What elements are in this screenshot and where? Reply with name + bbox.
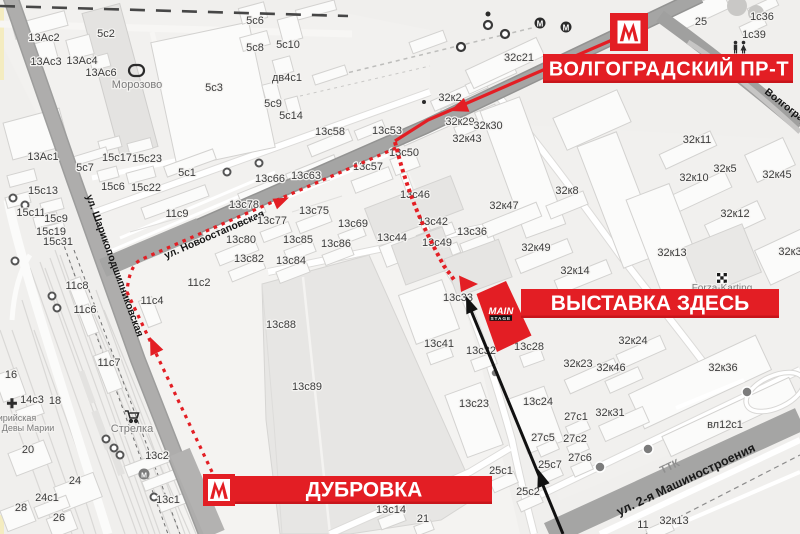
svg-text:25с1: 25с1 [489, 465, 513, 477]
svg-text:32к23: 32к23 [563, 358, 592, 370]
svg-text:32к14: 32к14 [560, 265, 589, 277]
svg-text:М: М [141, 473, 147, 480]
svg-text:Стрелка: Стрелка [111, 423, 154, 435]
svg-text:13с2: 13с2 [145, 450, 169, 462]
svg-text:13с89: 13с89 [292, 381, 322, 393]
svg-text:13с41: 13с41 [424, 338, 454, 350]
svg-text:5с10: 5с10 [276, 39, 300, 51]
svg-text:32к10: 32к10 [679, 172, 708, 184]
svg-text:20: 20 [22, 444, 34, 456]
svg-text:13с85: 13с85 [283, 234, 313, 246]
svg-text:32к3: 32к3 [778, 246, 800, 258]
svg-text:13с84: 13с84 [276, 255, 306, 267]
svg-text:вл12с1: вл12с1 [707, 419, 743, 431]
svg-text:15с11: 15с11 [16, 207, 45, 219]
svg-text:13с75: 13с75 [299, 205, 329, 217]
svg-text:Девы Марии: Девы Марии [2, 423, 55, 433]
svg-text:15с22: 15с22 [131, 182, 161, 194]
svg-text:14с3: 14с3 [20, 394, 44, 406]
svg-text:13с14: 13с14 [376, 504, 406, 516]
svg-text:32к43: 32к43 [452, 133, 481, 145]
svg-text:ДУБРОВКА: ДУБРОВКА [306, 479, 423, 502]
svg-text:32к31: 32к31 [595, 407, 624, 419]
svg-text:дв4с1: дв4с1 [272, 72, 302, 84]
svg-text:13с80: 13с80 [226, 234, 256, 246]
svg-text:11с9: 11с9 [165, 208, 188, 220]
svg-text:11с7: 11с7 [97, 357, 120, 369]
svg-text:25с2: 25с2 [516, 486, 540, 498]
svg-text:5с14: 5с14 [279, 110, 303, 122]
svg-text:13с86: 13с86 [321, 238, 351, 250]
svg-text:32к2: 32к2 [438, 92, 461, 104]
svg-text:13Ас6: 13Ас6 [85, 67, 116, 79]
svg-text:15с13: 15с13 [28, 185, 58, 197]
svg-text:13с63: 13с63 [291, 170, 321, 182]
svg-text:13с88: 13с88 [266, 319, 296, 331]
svg-text:1с36: 1с36 [750, 11, 774, 23]
svg-text:5с3: 5с3 [205, 82, 223, 94]
svg-text:24: 24 [69, 475, 81, 487]
svg-text:32к8: 32к8 [555, 185, 578, 197]
svg-text:18: 18 [49, 395, 61, 407]
svg-text:32к24: 32к24 [618, 335, 647, 347]
svg-text:1с39: 1с39 [742, 29, 766, 41]
svg-text:13с44: 13с44 [377, 232, 407, 244]
svg-text:15с31: 15с31 [43, 236, 73, 248]
svg-text:13с69: 13с69 [338, 218, 368, 230]
svg-text:32к13: 32к13 [657, 247, 686, 259]
svg-text:Морозово: Морозово [112, 79, 162, 91]
svg-text:27с1: 27с1 [564, 411, 588, 423]
svg-text:32к30: 32к30 [473, 120, 502, 132]
svg-text:STAGE: STAGE [490, 316, 511, 322]
svg-text:26: 26 [53, 512, 65, 524]
svg-text:13с57: 13с57 [353, 161, 383, 173]
svg-text:5с6: 5с6 [246, 15, 264, 27]
svg-text:13с58: 13с58 [315, 126, 345, 138]
svg-text:32к36: 32к36 [708, 362, 737, 374]
svg-text:13с82: 13с82 [234, 253, 264, 265]
svg-text:ирийская: ирийская [0, 413, 36, 423]
svg-text:32к49: 32к49 [521, 242, 550, 254]
svg-text:13с28: 13с28 [514, 341, 544, 353]
svg-text:5с8: 5с8 [246, 42, 264, 54]
svg-text:13с24: 13с24 [523, 396, 553, 408]
svg-text:13с66: 13с66 [255, 173, 285, 185]
svg-text:28: 28 [15, 502, 27, 514]
svg-text:13с77: 13с77 [257, 215, 287, 227]
svg-text:ВОЛГОГРАДСКИЙ ПР-Т: ВОЛГОГРАДСКИЙ ПР-Т [549, 57, 789, 81]
svg-text:32к47: 32к47 [489, 200, 518, 212]
svg-text:16: 16 [5, 369, 17, 381]
svg-text:М: М [537, 20, 544, 29]
svg-text:11с2: 11с2 [187, 277, 210, 289]
svg-text:32с21: 32с21 [504, 52, 534, 64]
svg-text:32к13: 32к13 [659, 515, 688, 527]
svg-text:13Ас2: 13Ас2 [28, 32, 59, 44]
svg-text:11: 11 [637, 519, 648, 531]
svg-text:М: М [563, 24, 570, 33]
svg-text:11с4: 11с4 [140, 295, 163, 307]
svg-text:13с53: 13с53 [372, 125, 402, 137]
svg-text:13с23: 13с23 [459, 398, 489, 410]
svg-text:✚: ✚ [7, 396, 18, 411]
svg-text:27с2: 27с2 [563, 433, 587, 445]
svg-text:5с9: 5с9 [264, 98, 282, 110]
svg-text:15с23: 15с23 [132, 153, 162, 165]
svg-text:13с49: 13с49 [422, 237, 452, 249]
svg-text:32к5: 32к5 [713, 163, 736, 175]
svg-text:25: 25 [695, 16, 707, 28]
svg-text:13с1: 13с1 [156, 494, 180, 506]
svg-text:13Ас1: 13Ас1 [27, 151, 58, 163]
svg-text:15с6: 15с6 [101, 181, 125, 193]
svg-text:27с5: 27с5 [531, 432, 555, 444]
svg-text:32к45: 32к45 [762, 169, 791, 181]
svg-text:27с6: 27с6 [568, 452, 592, 464]
svg-text:11с6: 11с6 [73, 304, 96, 316]
svg-text:32к12: 32к12 [720, 208, 749, 220]
svg-text:15с17: 15с17 [102, 152, 132, 164]
svg-text:11с8: 11с8 [65, 280, 88, 292]
svg-text:13с36: 13с36 [457, 226, 487, 238]
svg-text:15с9: 15с9 [44, 213, 68, 225]
svg-text:5с7: 5с7 [76, 162, 94, 174]
svg-text:13с32: 13с32 [466, 345, 496, 357]
svg-text:13Ас4: 13Ас4 [66, 55, 97, 67]
svg-text:13с46: 13с46 [400, 189, 430, 201]
svg-text:5с1: 5с1 [178, 167, 196, 179]
svg-text:5с2: 5с2 [97, 28, 115, 40]
svg-text:13Ас3: 13Ас3 [30, 56, 61, 68]
svg-text:32к11: 32к11 [683, 134, 711, 146]
svg-text:ВЫСТАВКА ЗДЕСЬ: ВЫСТАВКА ЗДЕСЬ [551, 292, 749, 315]
svg-text:32к46: 32к46 [596, 362, 625, 374]
svg-text:25с7: 25с7 [538, 459, 562, 471]
svg-text:24с1: 24с1 [35, 492, 59, 504]
svg-text:32к29: 32к29 [445, 116, 474, 128]
svg-text:21: 21 [417, 513, 429, 525]
